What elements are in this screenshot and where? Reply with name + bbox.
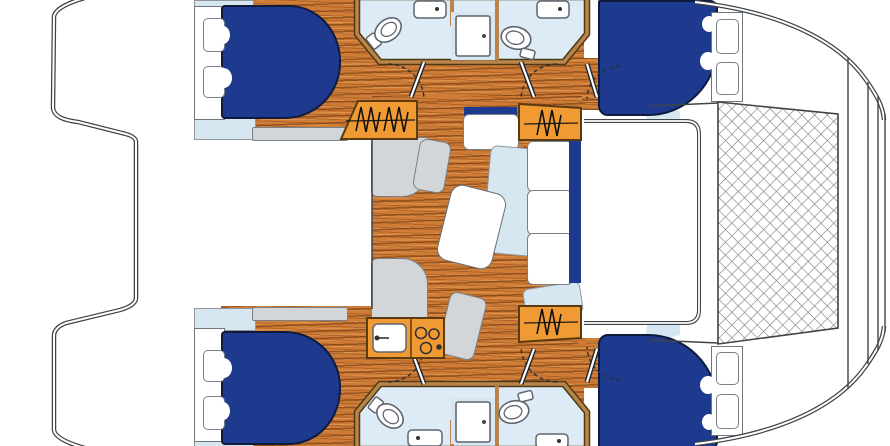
dinette-bench-fwd (463, 114, 519, 150)
pillow (716, 19, 739, 54)
sofa-backrest (569, 141, 581, 283)
duvet-fold (700, 376, 716, 394)
stbd-aft-step-strip (252, 307, 348, 321)
saloon-cabinet-aft (371, 258, 428, 320)
pillow (716, 352, 739, 385)
pillow (716, 62, 739, 95)
trampoline (718, 102, 838, 344)
duvet-fold (215, 68, 232, 88)
duvet-fold (216, 402, 230, 420)
foredeck (578, 110, 725, 338)
pillow (716, 394, 739, 429)
port-aft-step-strip (252, 127, 348, 141)
stbd-fwd-berth (598, 334, 718, 446)
duvet-fold (700, 52, 716, 70)
stern-outline (53, 0, 136, 446)
sofa-cushion (527, 190, 573, 235)
sofa-cushion (527, 141, 573, 192)
duvet-fold (216, 26, 230, 44)
port-aft-seat-strip (194, 117, 256, 140)
duvet-fold (702, 414, 716, 430)
sofa-cushion (527, 233, 573, 285)
duvet-fold (215, 358, 232, 378)
port-aft-berth (221, 5, 341, 119)
duvet-fold (702, 16, 716, 32)
boat-floor-plan (0, 0, 890, 446)
stbd-aft-berth (221, 331, 341, 445)
